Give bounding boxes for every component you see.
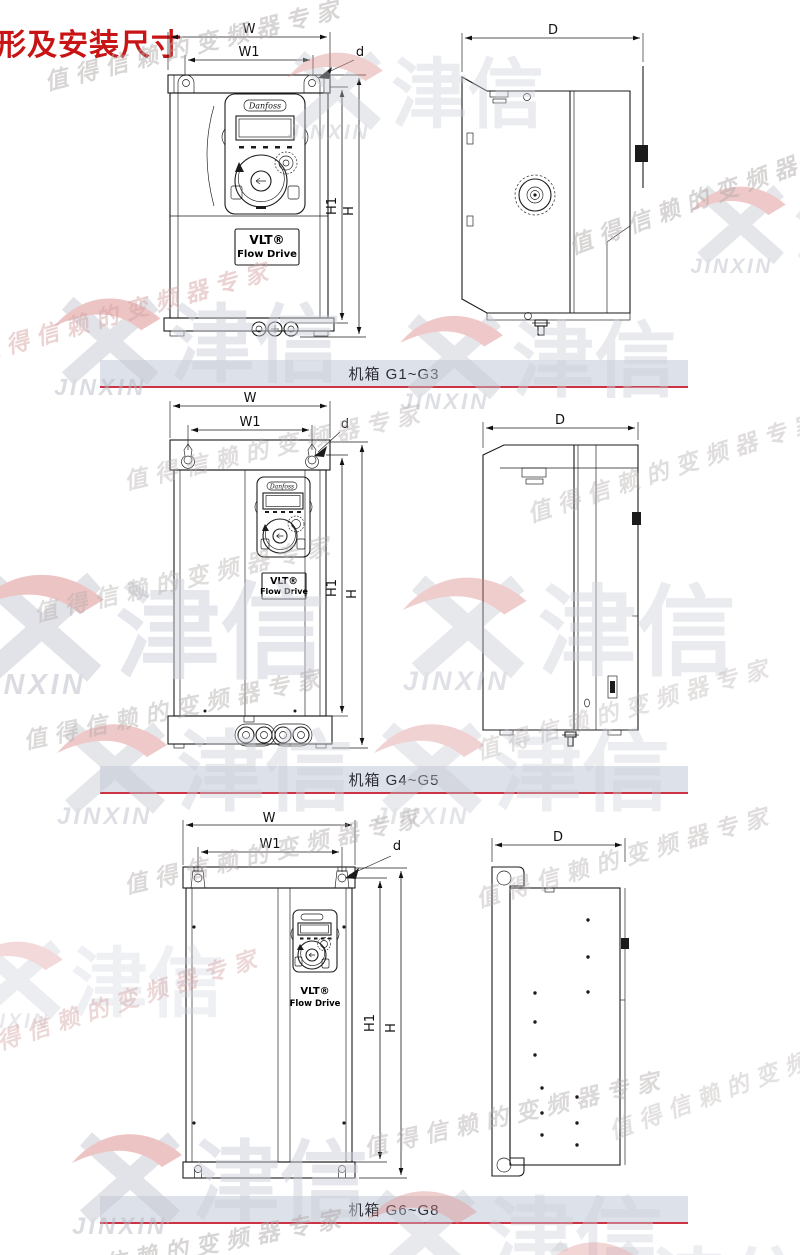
- dim-label-w: W: [263, 811, 276, 826]
- dim-w1: W1: [188, 415, 312, 450]
- off-mark: [256, 206, 266, 209]
- potentiometer-knob: [275, 152, 297, 174]
- dim-d-callout: d: [345, 839, 401, 879]
- front-view-g4-g5: W W1 d: [160, 398, 390, 760]
- dim-label-h1: H1: [363, 1014, 378, 1032]
- indicator-row: [239, 146, 292, 149]
- caption-text: 机箱 G1~G3: [349, 363, 440, 384]
- auto-button: [288, 186, 299, 199]
- back-arrow-icon: [277, 534, 284, 538]
- model-sub-text: Flow Drive: [290, 999, 341, 1009]
- dim-label-d: d: [393, 839, 401, 854]
- dim-label-h: H: [345, 589, 360, 599]
- dim-depth: D: [492, 830, 625, 862]
- drive-front-outline: [168, 75, 330, 318]
- screw-holes: [533, 918, 589, 1146]
- dim-label-w1: W1: [239, 415, 260, 430]
- terminal-block: [632, 512, 641, 525]
- drive-side-outline: [483, 445, 641, 746]
- dim-label-h: H: [342, 206, 357, 216]
- caption-text: 机箱 G6~G8: [349, 1199, 440, 1220]
- dim-label-w1: W1: [259, 837, 280, 852]
- bottom-plate: [164, 318, 334, 336]
- slot-foot: [339, 1166, 346, 1179]
- danfoss-logo: Danfoss: [248, 102, 281, 111]
- model-sub-text: Flow Drive: [260, 587, 308, 596]
- back-arrow-icon: [256, 178, 266, 184]
- cable-glands: [235, 724, 312, 746]
- dim-label-d: d: [356, 45, 364, 60]
- drive-front-outline: [183, 867, 355, 1162]
- dim-label-h: H: [384, 1023, 399, 1033]
- caption-g4-g5: 机箱 G4~G5: [100, 766, 688, 794]
- caption-g6-g8: 机箱 G6~G8: [100, 1196, 688, 1224]
- vent-slot: [467, 216, 473, 226]
- lcd-display: [236, 116, 294, 140]
- dim-h1: H1: [295, 87, 348, 323]
- dim-depth: D: [462, 23, 643, 72]
- product-label-sticker: [515, 175, 555, 215]
- terminal-block: [621, 938, 629, 949]
- dim-label-depth: D: [555, 413, 565, 428]
- bottom-bolt: [532, 320, 550, 335]
- model-label: VLT® Flow Drive: [290, 986, 341, 1009]
- model-text: VLT®: [300, 986, 329, 997]
- dim-w1: W1: [185, 45, 313, 76]
- caption-g1-g3: 机箱 G1~G3: [100, 360, 688, 388]
- terminal-block: [635, 145, 648, 162]
- content: 形及安装尺寸 W W1 d: [0, 0, 800, 1255]
- slot-foot: [195, 1166, 202, 1179]
- control-dial: [261, 516, 305, 553]
- side-view-g4-g5: D: [470, 398, 675, 760]
- front-view-g1-g3: W W1 d: [140, 26, 372, 356]
- dim-d-callout: d: [314, 417, 349, 457]
- danfoss-logo: Danfoss: [269, 484, 294, 491]
- bottom-plate: [183, 1162, 355, 1178]
- back-arrow-icon: [309, 953, 315, 957]
- bottom-plate: [168, 716, 332, 748]
- control-panel: Danfoss: [222, 94, 308, 214]
- cable-glands: [252, 322, 298, 336]
- vent-slot: [467, 133, 473, 144]
- control-dial: [231, 152, 299, 209]
- side-view-g1-g3: D: [445, 26, 660, 356]
- mounting-hole: [497, 871, 511, 885]
- model-text: VLT®: [249, 233, 284, 247]
- model-sub-text: Flow Drive: [237, 249, 297, 260]
- dim-label-w: W: [244, 391, 257, 406]
- auto-button: [297, 539, 305, 549]
- model-text: VLT®: [270, 576, 298, 587]
- dim-label-w: W: [243, 22, 256, 37]
- dim-label-depth: D: [553, 830, 563, 845]
- dim-h1: H1: [325, 455, 348, 716]
- dim-label-w1: W1: [238, 45, 259, 60]
- dim-label-d: d: [341, 417, 349, 432]
- drive-side-outline: [462, 66, 648, 335]
- control-dial: [295, 938, 331, 970]
- model-label: VLT® Flow Drive: [235, 229, 299, 265]
- indicator-row: [300, 938, 332, 940]
- dim-d-callout: d: [318, 45, 364, 79]
- front-view-g6-g8: W W1 d: [175, 818, 410, 1186]
- dim-label-h1: H1: [325, 579, 340, 597]
- drive-side-outline: [492, 867, 629, 1176]
- model-label: VLT® Flow Drive: [260, 573, 308, 599]
- control-panel: Danfoss: [255, 477, 312, 557]
- page: JINXIN 津信 形及安装尺寸 W W1: [0, 0, 800, 1255]
- dim-label-h1: H1: [325, 197, 340, 215]
- dim-label-depth: D: [548, 23, 558, 38]
- indicator-row: [265, 511, 301, 513]
- caption-text: 机箱 G4~G5: [349, 769, 440, 790]
- mounting-hole: [497, 1158, 511, 1172]
- bottom-bolt: [562, 732, 579, 746]
- control-panel: [291, 910, 339, 972]
- dim-depth: D: [483, 413, 638, 448]
- side-view-g6-g8: D: [485, 818, 650, 1186]
